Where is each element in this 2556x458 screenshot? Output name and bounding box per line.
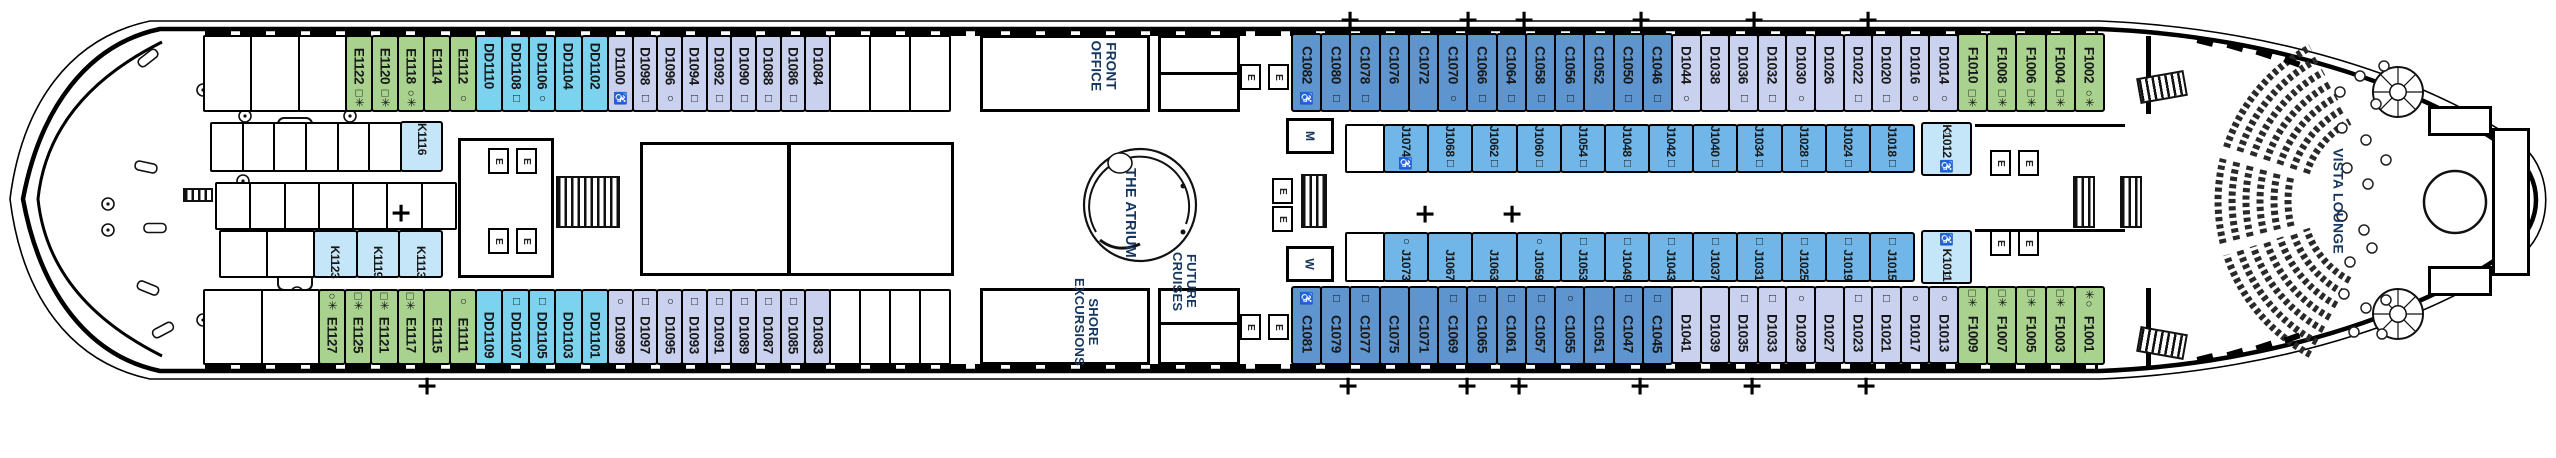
cabin-symbols: □ — [1880, 295, 1892, 303]
cabin-D1013: D1013○ — [1928, 286, 1959, 364]
cabin-D1029: D1029○ — [1785, 286, 1816, 364]
cabin-C1046: C1046□ — [1642, 33, 1673, 112]
cabin-J1028: J1028□ — [1781, 124, 1827, 173]
cabin-symbols: □ — [1798, 160, 1810, 168]
cabin-number: K1123 — [328, 246, 342, 279]
cabin-symbols: □ — [1621, 238, 1633, 246]
elevator-box: E — [1268, 64, 1289, 90]
cabin-D1086: D1086□ — [780, 35, 807, 112]
cabin-number: C1082 — [1299, 46, 1314, 84]
cabin-number: J1062 — [1487, 125, 1501, 156]
crew-cabin-row — [203, 289, 318, 365]
crew-cabin — [215, 182, 251, 230]
cabin-symbols: □ — [1534, 95, 1546, 103]
cabin-symbols: ○ — [1938, 95, 1950, 103]
cabin-number: J1019 — [1841, 249, 1855, 280]
plus-mark: + — [1457, 7, 1480, 34]
cabin-number: C1079 — [1328, 315, 1343, 353]
cabin-F1003: F1003□✳ — [2045, 286, 2076, 365]
cabin-D1021: D1021□ — [1871, 286, 1902, 364]
cabin-number: DD1101 — [587, 312, 602, 358]
cabin-C1047: C1047□ — [1613, 286, 1644, 365]
cabin-DD1105: DD1105□ — [528, 289, 556, 365]
cabin-symbols: □✳ — [378, 90, 392, 109]
crew-cabin — [318, 182, 354, 230]
cabin-symbols: ♿ — [1300, 91, 1314, 106]
crew-cabin — [869, 35, 911, 112]
cabin-D1026: D1026 — [1814, 34, 1845, 112]
cabin-J1054: J1054□ — [1560, 124, 1606, 173]
cabin-symbols: □ — [787, 95, 799, 103]
cabin-J1019: J1019□ — [1825, 232, 1871, 282]
cabin-J1018: J1018□ — [1869, 124, 1915, 173]
cabin-F1009: F1009□✳ — [1957, 286, 1988, 365]
crew-cabin — [1345, 124, 1385, 173]
wall — [1160, 72, 1238, 75]
cabin-symbols: □ — [1766, 95, 1778, 103]
crew-cabin — [242, 122, 276, 172]
cabin-number: E1117 — [403, 317, 418, 353]
cabin-C1057: C1057□ — [1525, 286, 1556, 365]
cabin-symbols: □ — [1534, 295, 1546, 303]
cabin-symbols: □ — [1766, 295, 1778, 303]
cabin-C1052: C1052 — [1583, 33, 1614, 112]
cabin-symbols: □ — [1737, 295, 1749, 303]
cabin-number: D1090 — [736, 47, 751, 85]
room — [980, 288, 1150, 365]
cabin-F1001: F1001✳○ — [2074, 286, 2105, 365]
cabin-C1071: C1071 — [1408, 286, 1439, 365]
cabin-number: J1060 — [1532, 125, 1546, 156]
cabin-D1039: D1039 — [1700, 286, 1731, 364]
plus-mark: + — [1501, 201, 1524, 228]
cabin-number: DD1108 — [508, 42, 523, 88]
cabin-symbols: □ — [1852, 95, 1864, 103]
cabin-C1065: C1065□ — [1466, 286, 1497, 365]
cabin-number: D1096 — [662, 47, 677, 85]
cabin-number: J1028 — [1797, 125, 1811, 156]
cabin-number: D1023 — [1850, 314, 1865, 352]
cabin-D1087: D1087□ — [755, 289, 782, 365]
cabin-D1098: D1098□ — [632, 35, 659, 112]
cabin-D1094: D1094□ — [681, 35, 708, 112]
cabin-E1120: E1120□✳ — [371, 35, 399, 112]
cabin-number: D1093 — [687, 316, 702, 354]
cabin-symbols: □ — [639, 95, 651, 103]
cabin-symbols: □ — [1621, 160, 1633, 168]
cabin-number: D1038 — [1707, 46, 1722, 84]
cabin-number: K1011 — [1940, 249, 1954, 282]
cabin-J1042: J1042□ — [1648, 124, 1694, 173]
cabin-C1066: C1066□ — [1466, 33, 1497, 112]
cabin-D1030: D1030○ — [1785, 34, 1816, 112]
cabin-symbols: ○ — [1564, 295, 1576, 303]
cabin-number: J1049 — [1620, 249, 1634, 280]
cabin-D1095: D1095○ — [656, 289, 683, 365]
cabin-symbols: □✳ — [1995, 90, 2009, 109]
cabin-group-dd-top: DD1110DD1108□DD1106○DD1104DD1102 — [475, 35, 607, 112]
cabin-number: D1100 — [613, 47, 628, 84]
cabin-number: D1033 — [1765, 314, 1780, 352]
cabin-number: D1016 — [1908, 46, 1923, 84]
cabin-number: J1037 — [1708, 249, 1722, 280]
crew-cabin — [273, 122, 307, 172]
room — [2492, 128, 2530, 276]
cabin-symbols: □✳ — [377, 293, 391, 312]
cabin-group-d-bot-aft: D1041D1039D1035□D1033□D1029○D1027D1023□D… — [1671, 286, 1957, 364]
cabin-number: J1068 — [1443, 125, 1457, 156]
cabin-D1085: D1085□ — [780, 289, 807, 365]
stage-circle — [2424, 171, 2486, 233]
cabin-number: D1017 — [1908, 314, 1923, 352]
cabin-C1078: C1078□ — [1349, 33, 1380, 112]
stairs — [2120, 176, 2142, 228]
cabin-K1011: K1011♿○ — [1921, 230, 1972, 284]
cabin-number: D1035 — [1736, 314, 1751, 352]
cabin-C1075: C1075 — [1379, 286, 1410, 365]
cabin-DD1106: DD1106○ — [528, 35, 556, 112]
crew-cabin — [889, 289, 921, 365]
cabin-symbols: □ — [762, 298, 774, 306]
cabin-E1115: E1115 — [423, 289, 451, 365]
cabin-D1092: D1092□ — [706, 35, 733, 112]
cabin-symbols: □ — [1737, 95, 1749, 103]
cabin-number: F1002 — [2082, 46, 2097, 82]
cabin-number: E1112 — [456, 48, 471, 84]
crew-cabin — [266, 230, 315, 278]
cabin-number: C1056 — [1562, 46, 1577, 84]
cabin-number: C1065 — [1475, 315, 1490, 353]
cabin-D1023: D1023□ — [1843, 286, 1874, 364]
cabin-number: D1091 — [712, 316, 727, 354]
cabin-symbols: ○ — [664, 95, 676, 103]
cabin-symbols: □✳ — [2053, 290, 2067, 309]
elevator-box: E — [1272, 206, 1293, 232]
cabin-symbols: ○ — [1795, 295, 1807, 303]
cabin-DD1109: DD1109 — [475, 289, 503, 365]
cabin-number: E1121 — [377, 317, 392, 353]
cabin-number: C1047 — [1621, 315, 1636, 353]
cabin-symbols: □ — [1880, 95, 1892, 103]
cabin-number: J1025 — [1797, 249, 1811, 280]
cabin-number: J1015 — [1885, 249, 1899, 280]
cabin-E1117: E1117□✳ — [397, 289, 425, 365]
cabin-D1017: D1017○ — [1900, 286, 1931, 364]
cabin-J1043: J1043□ — [1648, 232, 1694, 282]
cabin-K1116: K1116 — [400, 121, 443, 172]
cabin-symbols: ♿ — [1939, 232, 1953, 247]
cabin-D1089: D1089□ — [730, 289, 757, 365]
cabin-number: J1034 — [1752, 125, 1766, 156]
cabin-number: D1098 — [638, 47, 653, 85]
cabin-symbols: □ — [1665, 160, 1677, 168]
cabin-symbols: □✳ — [351, 293, 365, 312]
cabin-K1012: K1012♿○ — [1921, 122, 1972, 176]
cabin-D1014: D1014○ — [1928, 34, 1959, 112]
cabin-number: D1044 — [1679, 46, 1694, 84]
cabin-group-e-bot: E1127○✳E1125□✳E1121□✳E1117□✳E1115E1111○ — [318, 289, 475, 365]
elevator-box: E — [516, 228, 537, 254]
crew-cabin — [261, 289, 321, 365]
cabin-J1060: J1060□ — [1516, 124, 1562, 173]
cabin-C1081: C1081♿ — [1291, 286, 1322, 365]
cabin-D1100: D1100♿ — [607, 35, 634, 112]
cabin-number: E1120 — [378, 47, 393, 83]
cabin-symbols: ○✳ — [404, 90, 418, 109]
cabin-group-c-bot: C1081♿C1079□C1077□C1075C1071C1069□C1065□… — [1291, 286, 1671, 365]
cabin-J1074: J1074♿ — [1383, 124, 1429, 173]
cabin-symbols: ○ — [536, 95, 548, 103]
cabin-number: K1012 — [1940, 124, 1954, 157]
stairs — [556, 176, 620, 228]
cabin-number: E1114 — [430, 48, 445, 84]
cabin-number: J1040 — [1708, 125, 1722, 156]
cabin-symbols: □ — [1505, 295, 1517, 303]
crew-cabin — [203, 35, 252, 112]
cabin-symbols: □✳ — [2053, 90, 2067, 109]
cabin-C1082: C1082♿ — [1291, 33, 1322, 112]
cabin-symbols: ♿ — [1939, 159, 1953, 174]
elevator-box: E — [1272, 178, 1293, 204]
cabin-number: C1076 — [1387, 46, 1402, 84]
cabin-symbols: □ — [1447, 295, 1459, 303]
cabin-symbols: □ — [1852, 295, 1864, 303]
crew-cabin — [249, 182, 285, 230]
cabin-number: D1095 — [662, 316, 677, 354]
crew-cabin-row — [219, 230, 313, 278]
cabin-symbols: □ — [1533, 160, 1545, 168]
cabin-group-j-top: J1074♿J1068□J1062□J1060□J1054□J1048□J104… — [1383, 124, 1913, 173]
cabin-E1118: E1118○✳ — [397, 35, 425, 112]
cabin-number: C1070 — [1445, 46, 1460, 84]
cabin-symbols: □ — [1886, 160, 1898, 168]
cabin-number: C1081 — [1299, 315, 1314, 353]
cabin-symbols: □ — [1330, 95, 1342, 103]
cabin-number: DD1107 — [508, 312, 523, 358]
cabin-C1069: C1069□ — [1437, 286, 1468, 365]
cabin-symbols: □ — [1842, 160, 1854, 168]
elevator-box: E — [1990, 150, 2011, 176]
cabin-number: E1115 — [429, 317, 444, 353]
crew-cabin-row — [1345, 124, 1383, 173]
cabin-symbols: ○ — [1938, 295, 1950, 303]
cabin-DD1101: DD1101 — [581, 289, 609, 365]
cabin-number: D1083 — [810, 316, 825, 354]
cabin-J1048: J1048□ — [1604, 124, 1650, 173]
crew-cabin — [421, 182, 457, 230]
cabin-symbols: □ — [1709, 238, 1721, 246]
cabin-number: D1026 — [1822, 46, 1837, 84]
cabin-symbols: □ — [1709, 160, 1721, 168]
cabin-group-c-top: C1082♿C1080□C1078□C1076C1072C1070○C1066□… — [1291, 33, 1671, 112]
cabin-symbols: □ — [1886, 238, 1898, 246]
cabin-symbols: ♿ — [1399, 156, 1413, 171]
cabin-E1122: E1122□✳ — [345, 35, 373, 112]
cabin-J1063: J1063 — [1471, 232, 1517, 282]
cabin-D1020: D1020□ — [1871, 34, 1902, 112]
cabin-number: F1008 — [1994, 46, 2009, 82]
cabin-symbols: □✳ — [1966, 90, 1980, 109]
stairs — [2073, 176, 2095, 228]
cabin-number: J1073 — [1399, 249, 1413, 280]
plus-mark: + — [1414, 201, 1437, 228]
cabin-number: D1027 — [1822, 314, 1837, 352]
cabin-symbols: ○ — [1909, 295, 1921, 303]
cabin-number: D1089 — [736, 316, 751, 354]
cabin-C1058: C1058□ — [1525, 33, 1556, 112]
cabin-symbols: ○ — [457, 298, 469, 306]
cabin-number: J1042 — [1664, 125, 1678, 156]
cabin-number: D1087 — [761, 316, 776, 354]
cabin-number: D1094 — [687, 47, 702, 85]
cabin-K1123: K1123 — [313, 230, 358, 278]
cabin-symbols: □ — [1505, 95, 1517, 103]
cabin-number: DD1104 — [561, 42, 576, 88]
room — [788, 142, 954, 276]
cabin-symbols: ○ — [457, 95, 469, 103]
crew-cabin — [337, 122, 371, 172]
cabin-group-dd-bot: DD1109DD1107□DD1105□DD1103DD1101 — [475, 289, 607, 365]
room — [2428, 106, 2492, 136]
cabin-symbols: □ — [1665, 238, 1677, 246]
crew-cabin — [284, 182, 320, 230]
cabin-number: J1053 — [1576, 249, 1590, 280]
cabin-number: C1045 — [1650, 315, 1665, 353]
mens-restroom: M — [1286, 118, 1334, 154]
cabin-number: DD1102 — [587, 42, 602, 88]
cabin-symbols: ○ — [1400, 238, 1412, 246]
room — [980, 35, 1150, 112]
cabin-number: DD1106 — [535, 42, 550, 88]
cabin-number: F1001 — [2082, 315, 2097, 351]
cabin-F1006: F1006□✳ — [2015, 33, 2046, 112]
cabin-group-f-bot: F1009□✳F1007□✳F1005□✳F1003□✳F1001✳○ — [1957, 286, 2103, 365]
cabin-number: E1118 — [404, 48, 419, 84]
cabin-D1041: D1041 — [1671, 286, 1702, 364]
cabin-symbols: □ — [510, 298, 522, 306]
cabin-number: C1057 — [1533, 315, 1548, 353]
cabin-number: C1069 — [1445, 315, 1460, 353]
cabin-symbols: □✳ — [1966, 290, 1980, 309]
cabin-number: C1077 — [1358, 315, 1373, 353]
cabin-symbols: □ — [1444, 160, 1456, 168]
crew-cabin-row — [829, 35, 949, 112]
cabin-symbols: ○ — [1909, 95, 1921, 103]
cabin-C1045: C1045□ — [1642, 286, 1673, 365]
cabin-group-k-mid: K1123K1119K1113 — [313, 230, 441, 278]
deck-plan: FRONT OFFICE SHORE EXCURSIONS FUTURE CRU… — [0, 0, 2556, 458]
cabin-number: J1059 — [1532, 249, 1546, 280]
crew-cabin-row — [1345, 232, 1383, 282]
crew-cabin — [829, 35, 871, 112]
crew-cabin — [203, 289, 263, 365]
cabin-F1007: F1007□✳ — [1986, 286, 2017, 365]
cabin-number: DD1110 — [482, 43, 497, 89]
cabin-DD1103: DD1103 — [554, 289, 582, 365]
stairs — [1301, 174, 1327, 228]
cabin-number: D1022 — [1850, 46, 1865, 84]
cabin-C1080: C1080□ — [1320, 33, 1351, 112]
cabin-number: C1058 — [1533, 46, 1548, 84]
cabin-group-j-bot: J1073○J1067J1063J1059○J1053□J1049□J1043□… — [1383, 232, 1913, 282]
cabin-D1091: D1091□ — [706, 289, 733, 365]
cabin-number: K1113 — [414, 246, 428, 278]
cabin-E1112: E1112○ — [449, 35, 477, 112]
cabin-symbols: □ — [1577, 160, 1589, 168]
cabin-number: DD1105 — [535, 312, 550, 358]
plus-mark: + — [416, 373, 439, 400]
cabin-J1024: J1024□ — [1825, 124, 1871, 173]
cabin-symbols: □ — [536, 298, 548, 306]
cabin-group-d-top-aft: D1044○D1038D1036□D1032□D1030○D1026D1022□… — [1671, 34, 1957, 112]
cabin-E1121: E1121□✳ — [370, 289, 398, 365]
cabin-J1059: J1059○ — [1516, 232, 1562, 282]
plus-mark: + — [1741, 373, 1764, 400]
cabin-number: D1084 — [810, 47, 825, 85]
cabin-number: C1051 — [1591, 315, 1606, 353]
cabin-F1004: F1004□✳ — [2045, 33, 2076, 112]
plus-mark: + — [1629, 373, 1652, 400]
cabin-J1015: J1015□ — [1869, 232, 1915, 282]
elevator-box: E — [2018, 230, 2039, 256]
cabin-number: F1006 — [2024, 46, 2039, 82]
cabin-D1022: D1022□ — [1843, 34, 1874, 112]
cabin-symbols: □ — [1359, 295, 1371, 303]
cabin-C1070: C1070○ — [1437, 33, 1468, 112]
elevator-box: E — [1268, 314, 1289, 340]
cabin-C1076: C1076 — [1379, 33, 1410, 112]
cabin-symbols: ○ — [1533, 238, 1545, 246]
cabin-number: DD1109 — [482, 312, 497, 358]
cabin-number: F1009 — [1965, 315, 1980, 351]
cabin-D1099: D1099○ — [607, 289, 634, 365]
cabin-number: D1041 — [1679, 314, 1694, 352]
cabin-number: D1029 — [1793, 314, 1808, 352]
cabin-F1005: F1005□✳ — [2015, 286, 2046, 365]
cabin-symbols: □ — [787, 298, 799, 306]
cabin-number: J1063 — [1487, 249, 1501, 280]
cabin-C1050: C1050□ — [1613, 33, 1644, 112]
crew-cabin-row — [215, 182, 455, 230]
cabin-group-d-top-fwd: D1100♿D1098□D1096○D1094□D1092□D1090□D108… — [607, 35, 829, 112]
cabin-number: C1061 — [1504, 315, 1519, 353]
cabin-number: C1078 — [1358, 46, 1373, 84]
cabin-E1114: E1114 — [423, 35, 451, 112]
cabin-number: C1071 — [1416, 315, 1431, 353]
cabin-D1044: D1044○ — [1671, 34, 1702, 112]
crew-cabin — [829, 289, 861, 365]
cabin-C1055: C1055○ — [1554, 286, 1585, 365]
cabin-D1038: D1038 — [1700, 34, 1731, 112]
cabin-symbols: □✳ — [2024, 90, 2038, 109]
cabin-E1111: E1111○ — [449, 289, 477, 365]
cabin-J1031: J1031□ — [1736, 232, 1782, 282]
cabin-number: J1054 — [1576, 125, 1590, 156]
cabin-number: F1003 — [2053, 315, 2068, 351]
crew-cabin — [219, 230, 268, 278]
cabin-number: F1007 — [1994, 315, 2009, 351]
cabin-F1002: F1002○✳ — [2074, 33, 2105, 112]
elevator-box: E — [1990, 230, 2011, 256]
cabin-number: D1030 — [1793, 46, 1808, 84]
cabin-number: C1075 — [1387, 315, 1402, 353]
cabin-symbols: □ — [1798, 238, 1810, 246]
crew-cabin — [250, 35, 299, 112]
cabin-group-k1011: K1011♿○ — [1921, 230, 1970, 284]
cabin-J1040: J1040□ — [1692, 124, 1738, 173]
plus-mark: + — [1339, 7, 1362, 34]
cabin-number: D1085 — [786, 316, 801, 354]
